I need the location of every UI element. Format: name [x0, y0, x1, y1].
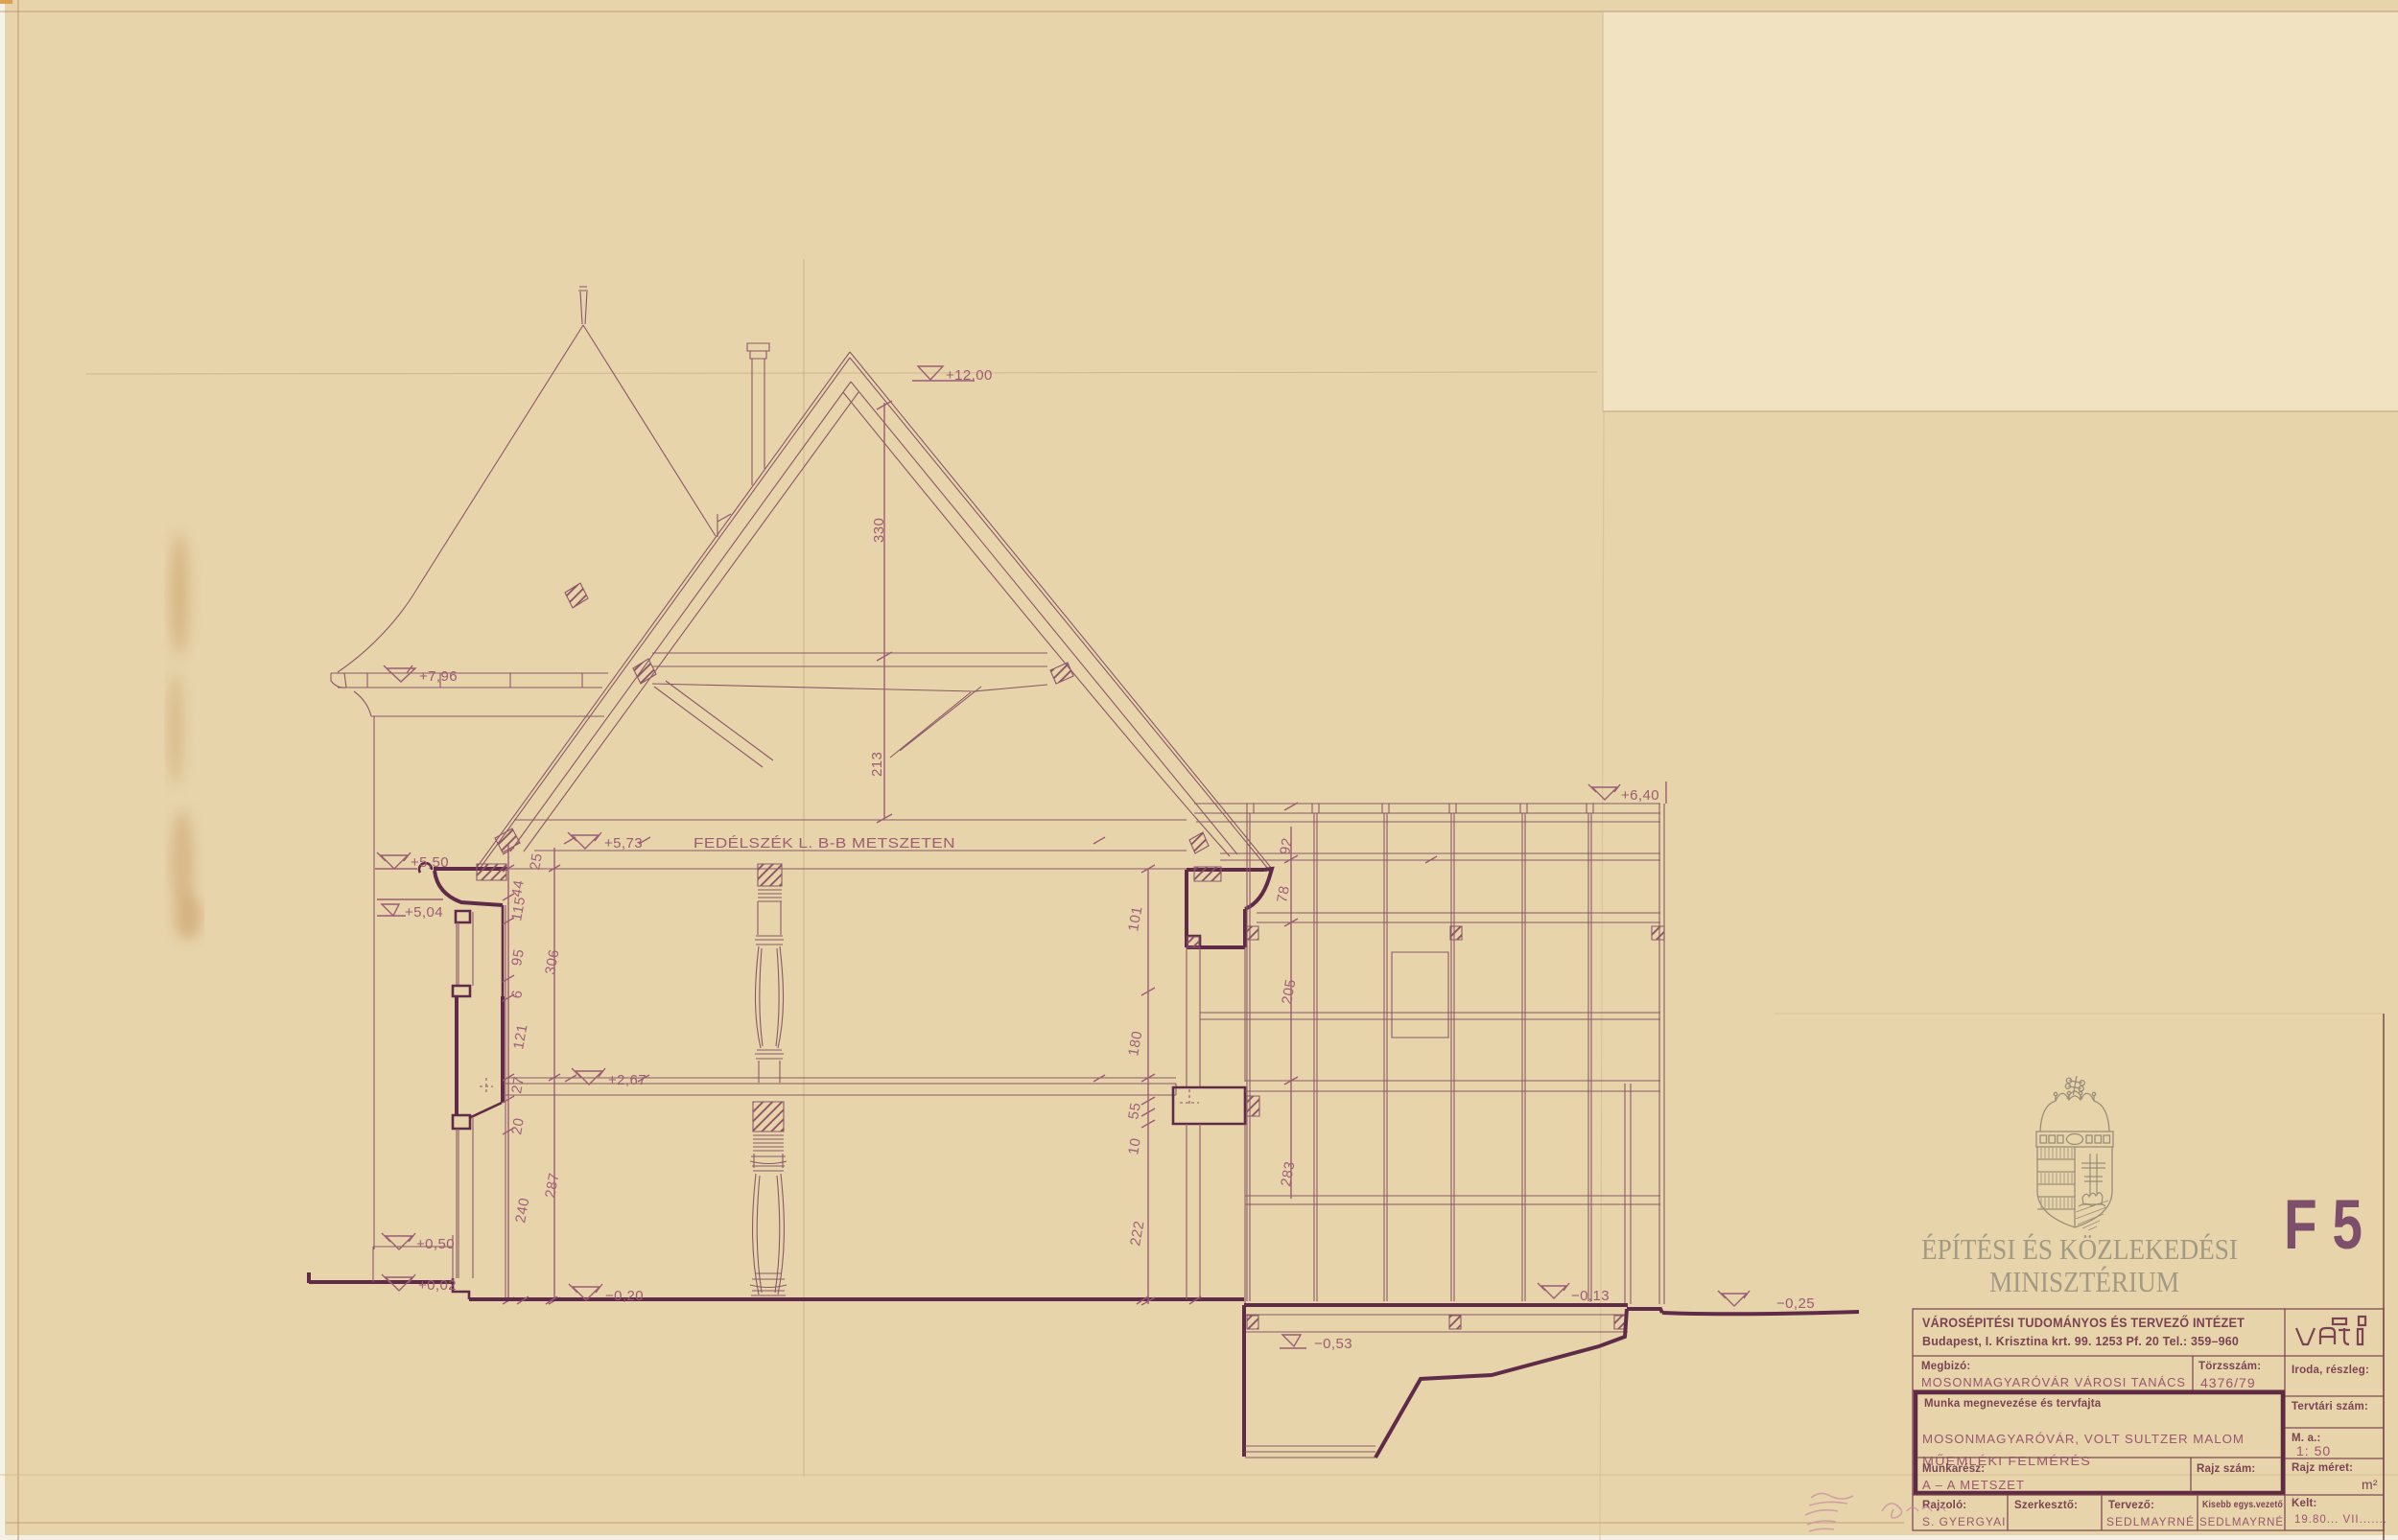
svg-text:+5,50: +5,50	[411, 854, 449, 871]
svg-text:A – A METSZET: A – A METSZET	[1922, 1478, 2025, 1492]
svg-text:44: 44	[508, 878, 528, 898]
svg-text:−0,25: −0,25	[1776, 1295, 1815, 1312]
svg-text:95: 95	[508, 947, 528, 967]
svg-text:MINISZTÉRIUM: MINISZTÉRIUM	[1989, 1265, 2179, 1298]
svg-text:92: 92	[1277, 836, 1296, 855]
svg-text:4376/79: 4376/79	[2200, 1375, 2256, 1390]
svg-text:+6,40: +6,40	[1621, 787, 1659, 804]
svg-text:SEDLMAYRNÉ: SEDLMAYRNÉ	[2199, 1514, 2284, 1528]
svg-text:19.80... VII.......: 19.80... VII.......	[2294, 1514, 2387, 1526]
svg-text:+5,73: +5,73	[604, 835, 643, 852]
svg-text:−0,13: −0,13	[1571, 1288, 1610, 1304]
svg-text:ÉPÍTÉSI ÉS KÖZLEKEDÉSI: ÉPÍTÉSI ÉS KÖZLEKEDÉSI	[1921, 1232, 2238, 1266]
svg-text:MOSONMAGYARÓVÁR, VOLT SULTZER: MOSONMAGYARÓVÁR, VOLT SULTZER MALOM	[1922, 1432, 2245, 1446]
svg-text:+7,96: +7,96	[419, 668, 458, 685]
svg-text:+5,04: +5,04	[405, 904, 443, 921]
svg-text:213: 213	[869, 752, 885, 777]
svg-text:−0,20: −0,20	[605, 1288, 644, 1304]
svg-text:Törzsszám:: Törzsszám:	[2198, 1361, 2261, 1372]
svg-text:Rajz szám:: Rajz szám:	[2197, 1463, 2255, 1475]
svg-text:55: 55	[1125, 1101, 1144, 1120]
svg-text:VÁROSÉPITÉSI TUDOMÁNYOS ÉS TER: VÁROSÉPITÉSI TUDOMÁNYOS ÉS TERVEZŐ INTÉZ…	[1922, 1314, 2245, 1330]
svg-text:−0,53: −0,53	[1314, 1336, 1352, 1352]
svg-text:330: 330	[871, 518, 887, 543]
svg-text:25: 25	[527, 852, 546, 871]
svg-text:Kelt:: Kelt:	[2292, 1498, 2317, 1509]
svg-text:+12,00: +12,00	[946, 367, 993, 384]
svg-text:Munkarész:: Munkarész:	[1922, 1463, 1985, 1475]
svg-text:Munka megnevezése és tervfajta: Munka megnevezése és tervfajta	[1924, 1398, 2102, 1410]
svg-text:1: 50: 1: 50	[2296, 1443, 2331, 1458]
svg-text:78: 78	[1274, 884, 1293, 903]
svg-text:Rajz méret:: Rajz méret:	[2292, 1462, 2353, 1474]
svg-text:+0,02: +0,02	[418, 1277, 457, 1294]
svg-text:F 5: F 5	[2284, 1186, 2363, 1264]
svg-text:10: 10	[1125, 1136, 1144, 1155]
svg-text:Tervtári szám:: Tervtári szám:	[2292, 1401, 2368, 1412]
svg-text:+0,50: +0,50	[416, 1236, 455, 1252]
svg-text:Kisebb egys.vezető: Kisebb egys.vezető	[2202, 1499, 2283, 1510]
svg-text:SEDLMAYRNÉ: SEDLMAYRNÉ	[2106, 1514, 2195, 1528]
svg-text:FEDÉLSZÉK L. B-B METSZETEN: FEDÉLSZÉK L. B-B METSZETEN	[694, 835, 955, 852]
svg-text:Megbizó:: Megbizó:	[1921, 1361, 1970, 1372]
svg-text:m²: m²	[2362, 1477, 2378, 1492]
svg-text:Szerkesztő:: Szerkesztő:	[2014, 1500, 2078, 1511]
svg-text:Tervező:: Tervező:	[2108, 1500, 2154, 1511]
svg-text:MOSONMAGYARÓVÁR VÁROSI TANÁCS: MOSONMAGYARÓVÁR VÁROSI TANÁCS	[1921, 1375, 2186, 1389]
svg-text:Budapest, I. Krisztina krt. 99: Budapest, I. Krisztina krt. 99. 1253 Pf.…	[1922, 1335, 2239, 1348]
svg-text:Iroda, részleg:: Iroda, részleg:	[2292, 1365, 2369, 1376]
svg-text:20: 20	[508, 1116, 528, 1135]
svg-text:S. GYERGYAI: S. GYERGYAI	[1922, 1515, 2006, 1528]
